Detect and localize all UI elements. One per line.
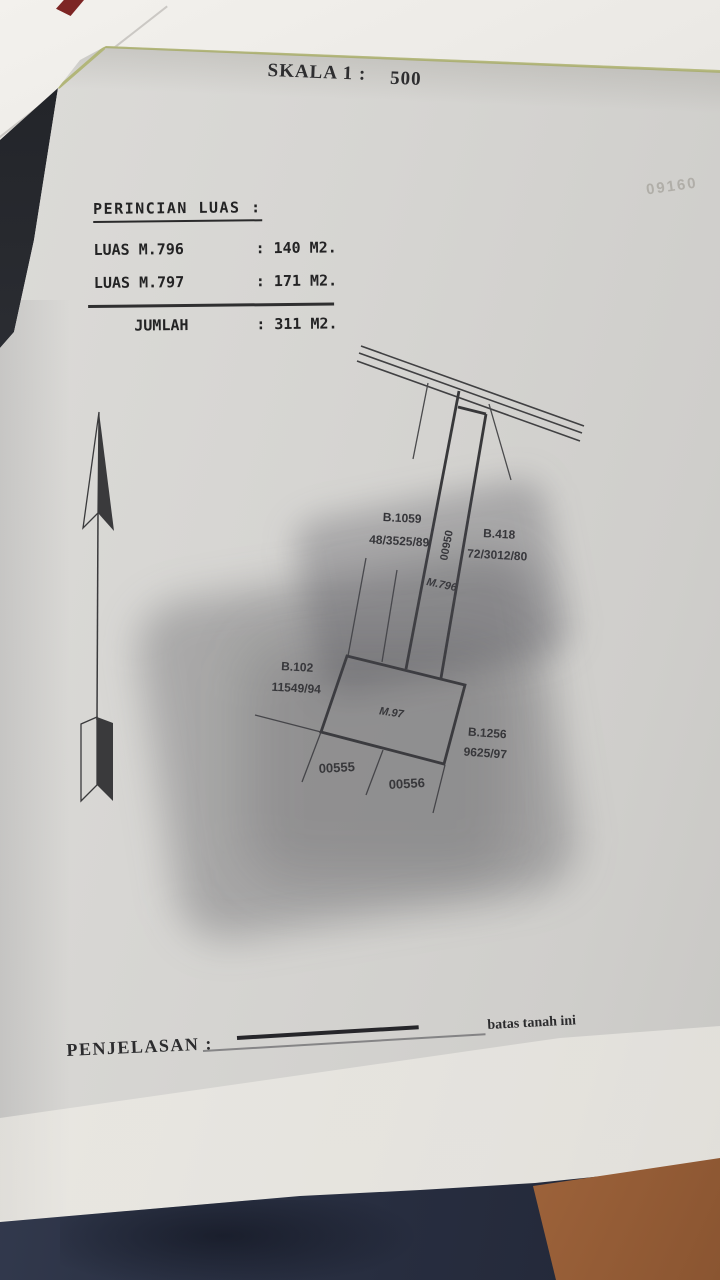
road-lines (357, 346, 584, 441)
document-page: SKALA 1 : 500 PERINCIAN LUAS : LUAS M.79… (0, 0, 720, 1280)
hand-shadow-core (245, 640, 515, 880)
photo-of-document: SKALA 1 : 500 PERINCIAN LUAS : LUAS M.79… (0, 0, 720, 1280)
north-arrow-icon (81, 412, 114, 801)
